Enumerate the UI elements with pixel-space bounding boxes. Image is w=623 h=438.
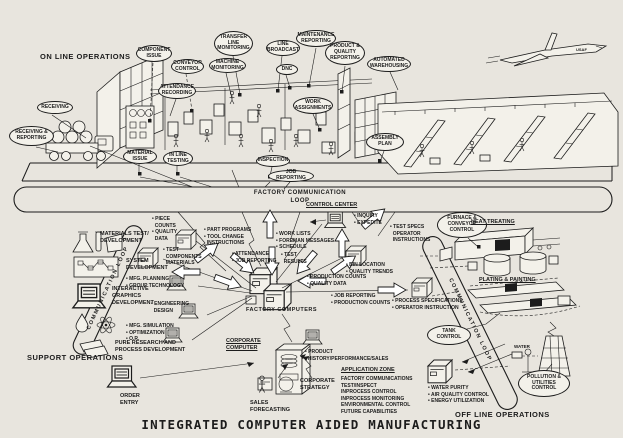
oval-pollution-utilities-control: POLLUTION & UTILITIES CONTROL: [518, 370, 570, 397]
caption-water: WATER: [514, 344, 530, 350]
label-inquiry-expedite: • INQUIRY • EXPEDITE: [354, 213, 382, 226]
label-attendance-job-reporting: • ATTENDANCE • JOB REPORTING: [232, 251, 277, 264]
oval-line-broadcast: LINE BROADCAST: [266, 40, 300, 56]
label-piece-counts: • PIECE COUNTS • QUALITY DATA: [152, 216, 177, 242]
label-work-lists: • WORK LISTS • FOREMAN MESSAGES • SCHEDU…: [276, 231, 334, 251]
oval-transfer-line-monitoring: TRANSFER LINE MONITORING: [214, 31, 253, 56]
aircraft: [486, 33, 606, 66]
label-production-counts: • PRODUCTION COUNTS • QUALITY DATA: [307, 274, 366, 287]
oval-dnc: DNC: [276, 64, 298, 75]
oval-tank-control: TANK CONTROL: [427, 325, 471, 345]
caption-heat-treating: HEAT TREATING: [471, 219, 515, 226]
oval-product-quality-reporting: PRODUCT & QUALITY REPORTING: [325, 41, 365, 65]
caption-plating-painting: PLATING & PAINTING: [479, 277, 536, 284]
caption-corporate-strategy: CORPORATE STRATEGY: [300, 378, 335, 392]
oval-inspection: INSPECTION: [256, 155, 290, 167]
oval-receiving-reporting: RECEIVING & REPORTING: [9, 126, 54, 146]
label-system-development: SYSTEM DEVELOPMENT: [126, 258, 168, 272]
oval-component-issue: COMPONENT ISSUE: [136, 45, 172, 62]
diagram-canvas: ON LINE OPERATIONS SUPPORT OPERATIONS OF…: [0, 0, 623, 438]
label-part-programs: • PART PROGRAMS • TOOL CHANGE INSTRUCTIO…: [204, 227, 251, 247]
caption-order-entry: ORDER ENTRY: [120, 393, 140, 407]
oval-automated-warehousing: AUTOMATED WAREHOUSING: [367, 56, 411, 72]
label-pure-research-process-development: PURE RESEARCH AND PROCESS DEVELOPMENT: [115, 340, 185, 354]
diagram-title: INTEGRATED COMPUTER AIDED MANUFACTURING: [0, 417, 623, 432]
automated-warehouse: [378, 93, 618, 174]
oval-in-line-testing: IN LINE TESTING: [163, 151, 193, 166]
oval-attendance-recording: ATTENDANCE RECORDING: [158, 83, 196, 99]
label-test-specs: • TEST SPECS OPERATOR INSTRUCTIONS: [390, 224, 430, 244]
oval-job-reporting: JOB REPORTING: [268, 170, 314, 182]
label-test-components: • TEST COMPONENTS MATERIALS: [163, 247, 202, 267]
caption-factory-computers: FACTORY COMPUTERS: [246, 307, 317, 314]
label-test-results: • TEST RESULTS: [281, 252, 307, 265]
caption-control-center: CONTROL CENTER: [306, 202, 357, 209]
oval-work-assignments: WORK ASSIGNMENTS: [293, 97, 333, 114]
label-job-reporting-production-counts: • JOB REPORTING • PRODUCTION COUNTS: [331, 293, 390, 306]
oval-machine-monitoring: MACHINE MONITORING: [209, 58, 246, 73]
label-interactive-graphics-development: INTERACTIVE GRAPHICS DEVELOPMENT: [112, 286, 154, 307]
section-support-operations: SUPPORT OPERATIONS: [27, 353, 123, 362]
caption-sales-forecasting: SALES FORECASTING: [250, 400, 290, 414]
label-materials-test-development: MATERIALS TEST/ DEVELOPMENT: [100, 231, 149, 245]
oval-material-issue: MATERIAL ISSUE: [123, 149, 157, 164]
label-water-purity: • WATER PURITY • AIR QUALITY CONTROL • E…: [428, 385, 489, 405]
control-center-terminal: [310, 212, 346, 227]
label-process-specifications: • PROCESS SPECIFICATIONS • OPERATOR INST…: [392, 298, 463, 311]
oval-receiving: RECEIVING: [37, 101, 73, 114]
caption-usaf: USAF: [576, 47, 587, 52]
section-on-line-operations: ON LINE OPERATIONS: [40, 52, 131, 61]
oval-assembly-plan: ASSEMBLY PLAN: [366, 133, 404, 151]
label-product-history: • PRODUCT HISTORY/PERFORMANCE/SALES: [305, 349, 388, 362]
label-engineering-design: • ENGINEERING DESIGN: [151, 301, 189, 314]
oval-conveyor-control: CONVEYOR CONTROL: [171, 59, 204, 74]
label-application-zone-items: FACTORY COMMUNICATIONS TEST/INSPECT INPR…: [341, 376, 412, 415]
caption-corporate-computer: CORPORATE COMPUTER: [226, 338, 261, 352]
caption-application-zone-title: APPLICATION ZONE: [341, 367, 395, 374]
